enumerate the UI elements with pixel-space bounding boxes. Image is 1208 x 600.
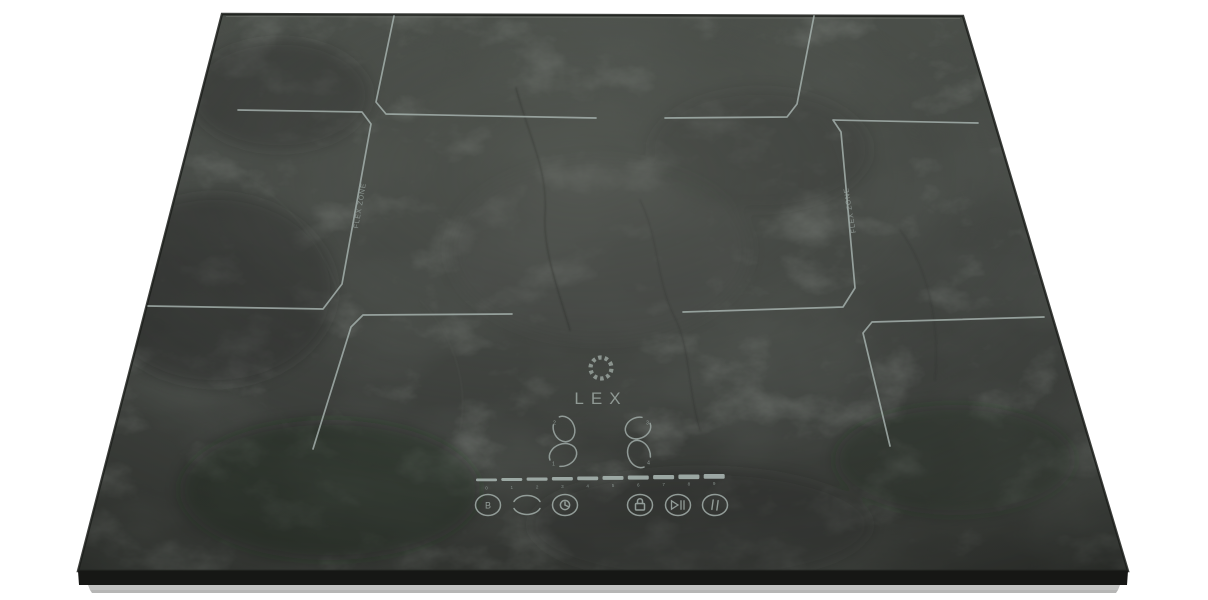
slider-level-label: 6 (637, 483, 640, 488)
slider-level-label: 0 (485, 486, 488, 491)
zone-number: 4 (647, 461, 650, 467)
slider-segment (704, 474, 725, 479)
brand-logo-text: LEX (574, 389, 627, 408)
slider-segment (653, 475, 674, 479)
zone-number: 3 (646, 421, 649, 427)
hob-base (78, 571, 1128, 593)
slider-segment (552, 477, 573, 481)
slider-segment (527, 478, 548, 481)
base-strip (88, 585, 1120, 590)
boost-b-icon: B (485, 501, 491, 511)
slider-level-label: 4 (586, 484, 589, 489)
zone-number: 1 (552, 462, 555, 468)
slider-level-label: 5 (612, 483, 615, 488)
glass-surface (60, 6, 1150, 581)
slider-level-label: 2 (536, 485, 539, 490)
slider-level-label: 9 (713, 481, 716, 486)
slider-level-label: 1 (511, 485, 514, 490)
slider-segment (501, 478, 522, 481)
product-photo: FLEX ZONE FLEX ZONE LEX 2 3 1 4 (0, 0, 1208, 600)
slider-level-label: 8 (688, 482, 691, 487)
slider-level-label: 3 (561, 484, 564, 489)
slider-segment (603, 476, 624, 480)
induction-hob-photo: FLEX ZONE FLEX ZONE LEX 2 3 1 4 (0, 0, 1208, 600)
slider-segment (628, 476, 649, 480)
slider-segment (476, 479, 497, 482)
slider-segment (577, 477, 598, 481)
zone-number: 2 (553, 421, 556, 427)
slider-level-label: 7 (662, 482, 665, 487)
slider-segment (678, 475, 699, 480)
